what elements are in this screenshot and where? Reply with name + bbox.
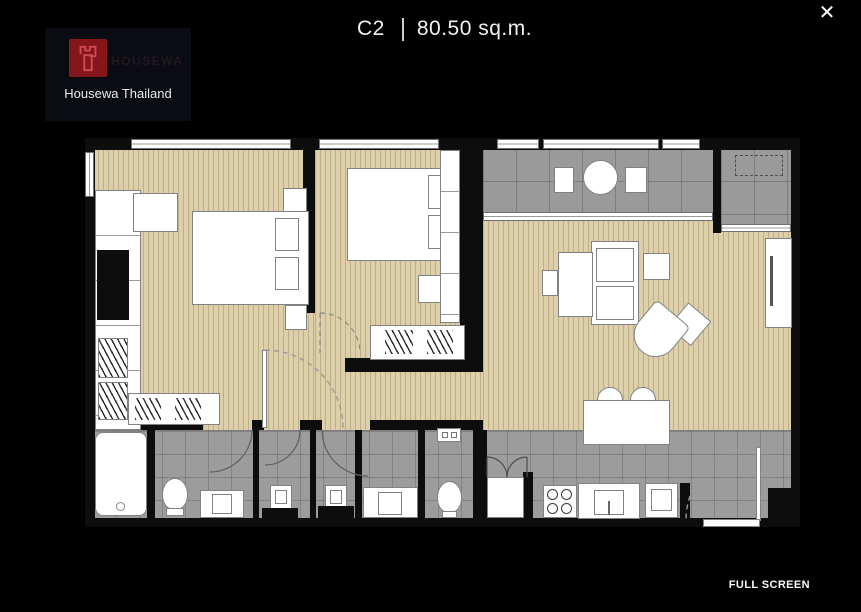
floor-plan-canvas: [85, 138, 800, 527]
close-icon[interactable]: ✕: [813, 0, 841, 26]
housewa-logo: HOUSEWA Housewa Thailand: [45, 28, 191, 121]
unit-code: C2: [357, 17, 385, 41]
plan-title: C2 80.50 sq.m.: [357, 17, 532, 41]
logo-brand-text: HOUSEWA: [111, 54, 184, 68]
fullscreen-button[interactable]: FULL SCREEN: [729, 579, 810, 591]
unit-area: 80.50 sq.m.: [417, 17, 532, 41]
title-divider: [402, 18, 404, 41]
logo-house-icon: [69, 39, 107, 77]
door-swing-arcs: [85, 138, 800, 527]
house-door-glyph: [76, 44, 100, 72]
logo-caption: Housewa Thailand: [45, 86, 191, 101]
